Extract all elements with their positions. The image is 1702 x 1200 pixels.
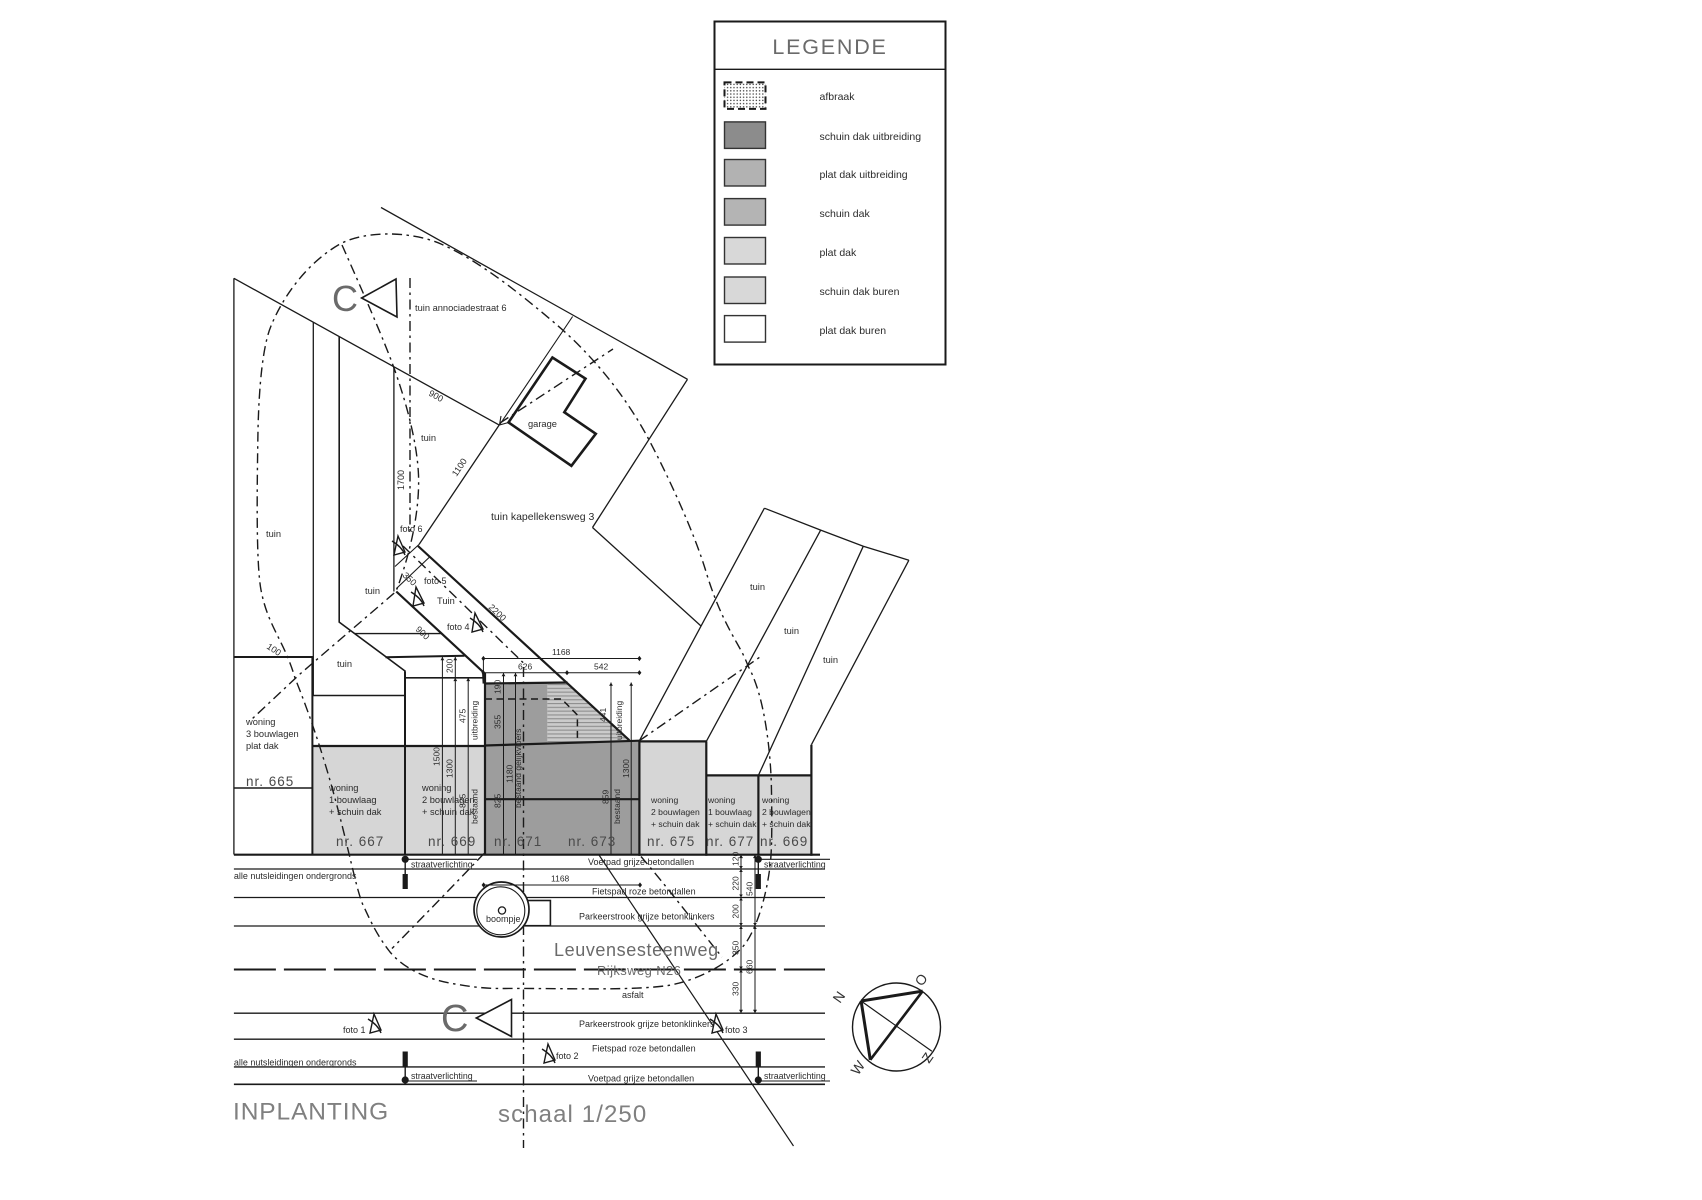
svg-text:3 bouwlagen: 3 bouwlagen (246, 729, 299, 739)
svg-text:200: 200 (445, 659, 455, 673)
svg-text:Voetpad grijze betondallen: Voetpad grijze betondallen (588, 1074, 694, 1084)
svg-text:C: C (441, 998, 468, 1040)
svg-text:woning: woning (707, 795, 735, 805)
svg-text:uitbreiding: uitbreiding (614, 701, 624, 740)
svg-text:220: 220 (731, 876, 741, 890)
svg-text:woning: woning (245, 717, 275, 727)
svg-text:plat dak: plat dak (820, 247, 858, 259)
svg-text:475: 475 (458, 709, 468, 723)
svg-text:plat dak buren: plat dak buren (820, 325, 887, 337)
svg-text:+ schuin dak: + schuin dak (762, 819, 811, 829)
svg-text:350: 350 (731, 941, 741, 955)
svg-text:tuin: tuin (421, 433, 436, 443)
svg-text:tuin annociadestraat 6: tuin annociadestraat 6 (415, 303, 507, 313)
svg-text:LEGENDE: LEGENDE (772, 35, 887, 59)
svg-text:tuin: tuin (784, 626, 799, 636)
svg-text:garage: garage (528, 419, 557, 429)
svg-text:Fietspad roze betondallen: Fietspad roze betondallen (592, 887, 696, 897)
svg-text:alle nutsleidingen ondergronds: alle nutsleidingen ondergronds (234, 1058, 357, 1068)
svg-text:nr. 671: nr. 671 (494, 834, 542, 849)
svg-text:foto 1: foto 1 (343, 1025, 366, 1035)
svg-text:nr. 677: nr. 677 (706, 834, 754, 849)
svg-text:C: C (332, 278, 358, 319)
svg-text:alle nutsleidingen ondergronds: alle nutsleidingen ondergronds (234, 871, 357, 881)
svg-text:540: 540 (745, 882, 755, 896)
svg-text:1500: 1500 (432, 747, 442, 766)
svg-text:+ schuin dak: + schuin dak (329, 807, 382, 817)
svg-text:nr. 673: nr. 673 (568, 834, 616, 849)
svg-text:woning: woning (328, 783, 358, 793)
svg-text:190: 190 (493, 680, 503, 694)
svg-text:uitbreiding: uitbreiding (470, 701, 480, 740)
svg-text:Leuvensesteenweg: Leuvensesteenweg (554, 940, 719, 960)
svg-text:schuin dak uitbreiding: schuin dak uitbreiding (820, 131, 922, 143)
svg-text:1300: 1300 (445, 759, 455, 778)
svg-text:Voetpad grijze betondallen: Voetpad grijze betondallen (588, 857, 694, 867)
svg-text:Tuin: Tuin (437, 596, 455, 606)
svg-text:825: 825 (493, 794, 503, 808)
svg-text:plat dak: plat dak (246, 741, 279, 751)
svg-text:+ schuin dak: + schuin dak (422, 807, 475, 817)
svg-text:straatverlichting: straatverlichting (764, 1071, 826, 1081)
svg-text:1 bouwlaag: 1 bouwlaag (708, 807, 752, 817)
svg-text:tuin: tuin (365, 586, 380, 596)
svg-text:plat dak uitbreiding: plat dak uitbreiding (820, 169, 908, 181)
svg-text:straatverlichting: straatverlichting (411, 860, 473, 870)
svg-text:foto 3: foto 3 (725, 1025, 748, 1035)
svg-text:626: 626 (518, 662, 532, 672)
svg-text:859: 859 (601, 790, 611, 804)
svg-text:afbraak: afbraak (820, 91, 856, 103)
svg-text:Fietspad roze betondallen: Fietspad roze betondallen (592, 1044, 696, 1054)
svg-text:1700: 1700 (396, 470, 406, 490)
svg-text:bestaand: bestaand (612, 789, 622, 824)
svg-text:foto 2: foto 2 (556, 1051, 579, 1061)
svg-text:foto 5: foto 5 (424, 576, 447, 586)
svg-text:INPLANTING: INPLANTING (233, 1099, 389, 1126)
svg-text:nr. 665: nr. 665 (246, 774, 294, 789)
svg-text:1168: 1168 (552, 647, 571, 657)
svg-text:542: 542 (594, 662, 608, 672)
svg-text:nr. 675: nr. 675 (647, 834, 695, 849)
svg-text:1 bouwlaag: 1 bouwlaag (329, 795, 377, 805)
svg-text:nr. 669: nr. 669 (428, 834, 476, 849)
svg-text:foto 4: foto 4 (447, 622, 470, 632)
svg-text:nr. 667: nr. 667 (336, 834, 384, 849)
svg-text:woning: woning (650, 795, 678, 805)
svg-text:Rijksweg N26: Rijksweg N26 (597, 963, 681, 978)
svg-text:tuin: tuin (266, 529, 281, 539)
svg-text:woning: woning (761, 795, 789, 805)
svg-text:2 bouwlagen: 2 bouwlagen (422, 795, 475, 805)
svg-text:boompje: boompje (486, 914, 521, 924)
svg-text:foto 6: foto 6 (400, 524, 423, 534)
svg-text:355: 355 (493, 715, 503, 729)
svg-text:120: 120 (731, 852, 741, 866)
svg-text:200: 200 (731, 904, 741, 918)
svg-text:woning: woning (421, 783, 451, 793)
svg-text:Parkeerstrook grijze betonklin: Parkeerstrook grijze betonklinkers (579, 912, 715, 922)
svg-text:2 bouwlagen: 2 bouwlagen (762, 807, 811, 817)
svg-text:441: 441 (598, 708, 608, 722)
svg-text:straatverlichting: straatverlichting (411, 1071, 473, 1081)
svg-text:schuin dak: schuin dak (820, 208, 871, 220)
svg-text:1300: 1300 (621, 759, 631, 778)
svg-text:bestaand gelijkvloers: bestaand gelijkvloers (513, 729, 523, 808)
svg-text:asfalt: asfalt (622, 990, 644, 1000)
svg-text:tuin: tuin (750, 582, 765, 592)
svg-text:1168: 1168 (551, 874, 570, 884)
svg-text:+ schuin dak: + schuin dak (708, 819, 757, 829)
svg-text:2 bouwlagen: 2 bouwlagen (651, 807, 700, 817)
svg-text:nr. 669: nr. 669 (760, 834, 808, 849)
svg-text:Parkeerstrook grijze betonklin: Parkeerstrook grijze betonklinkers (579, 1019, 715, 1029)
svg-text:tuin kapellekensweg 3: tuin kapellekensweg 3 (491, 511, 594, 523)
svg-text:330: 330 (731, 982, 741, 996)
svg-text:straatverlichting: straatverlichting (764, 860, 826, 870)
svg-text:tuin: tuin (337, 659, 352, 669)
svg-text:+ schuin dak: + schuin dak (651, 819, 700, 829)
svg-text:schaal 1/250: schaal 1/250 (498, 1101, 647, 1128)
svg-text:660: 660 (745, 960, 755, 974)
svg-text:schuin dak buren: schuin dak buren (820, 286, 900, 298)
svg-text:tuin: tuin (823, 655, 838, 665)
